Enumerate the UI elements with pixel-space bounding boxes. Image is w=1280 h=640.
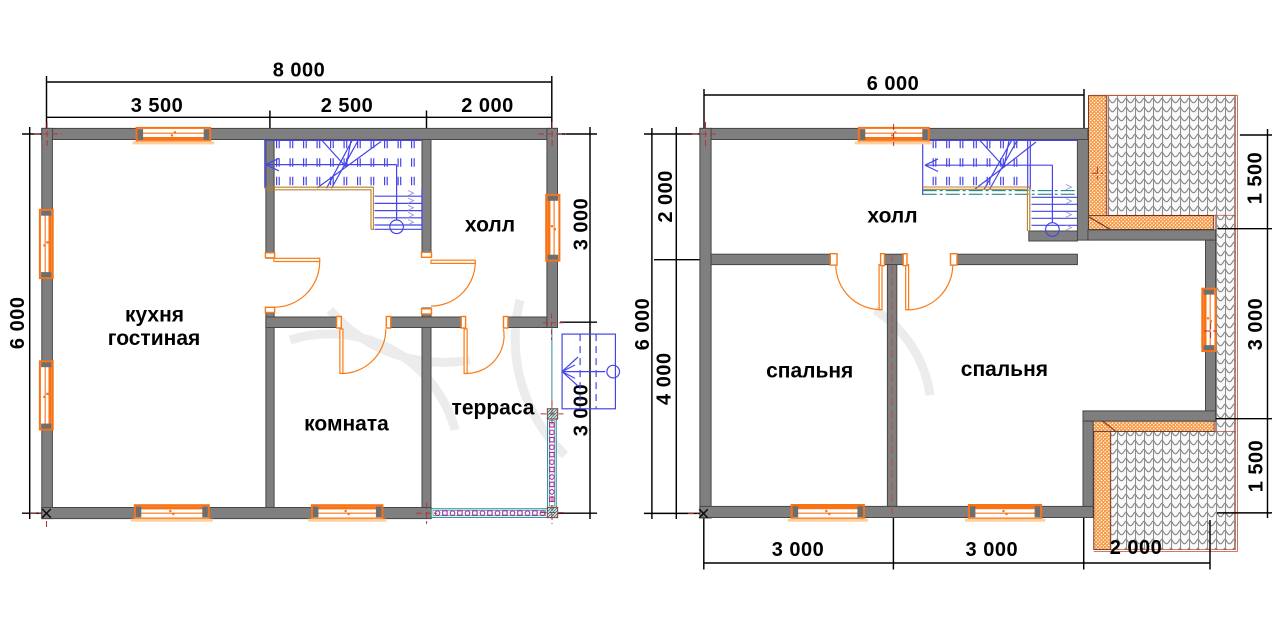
- svg-text:3 000: 3 000: [571, 384, 593, 437]
- svg-text:гостиная: гостиная: [108, 327, 201, 350]
- svg-text:8 000: 8 000: [273, 60, 326, 82]
- svg-text:3 500: 3 500: [131, 95, 184, 117]
- svg-text:кухня: кухня: [125, 304, 184, 327]
- svg-text:2 000: 2 000: [655, 170, 677, 223]
- svg-text:2 000: 2 000: [1110, 537, 1163, 559]
- svg-text:комната: комната: [304, 413, 389, 436]
- svg-text:4 000: 4 000: [654, 352, 676, 405]
- svg-text:6 000: 6 000: [867, 73, 920, 95]
- svg-text:холл: холл: [867, 205, 917, 228]
- svg-text:холл: холл: [465, 214, 515, 237]
- svg-text:3 000: 3 000: [571, 198, 593, 251]
- svg-text:6 000: 6 000: [7, 297, 29, 350]
- svg-text:спальня: спальня: [961, 358, 1048, 381]
- svg-text:2 500: 2 500: [321, 95, 374, 117]
- svg-text:3 000: 3 000: [966, 539, 1019, 561]
- svg-text:3 000: 3 000: [772, 539, 825, 561]
- svg-text:3 000: 3 000: [1245, 298, 1267, 351]
- svg-text:1 500: 1 500: [1246, 440, 1268, 493]
- svg-text:1 500: 1 500: [1245, 152, 1267, 205]
- svg-text:терраса: терраса: [452, 397, 535, 420]
- svg-text:спальня: спальня: [766, 360, 853, 383]
- svg-text:2 000: 2 000: [461, 95, 514, 117]
- svg-text:6 000: 6 000: [632, 298, 654, 351]
